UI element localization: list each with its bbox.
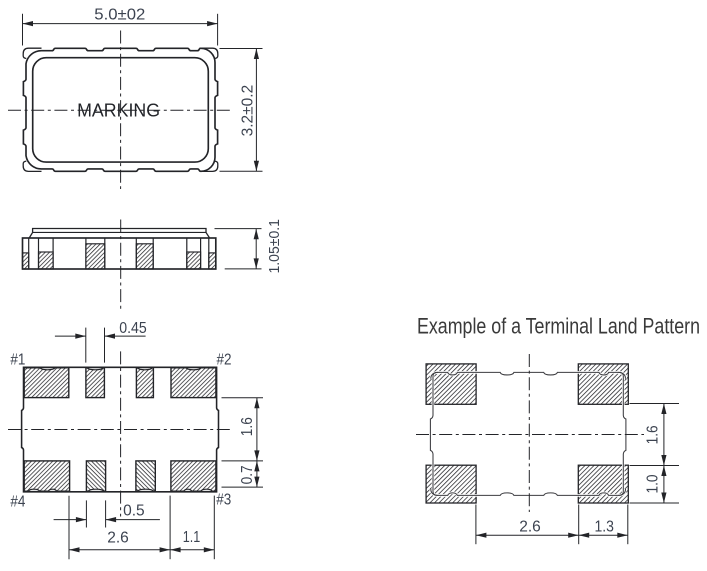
svg-text:2.6: 2.6 [107, 529, 129, 546]
svg-text:#4: #4 [10, 494, 25, 511]
svg-text:0.45: 0.45 [119, 320, 147, 337]
svg-text:1.05±0.1: 1.05±0.1 [267, 219, 283, 273]
svg-text:0.7: 0.7 [239, 465, 256, 484]
svg-text:1.0: 1.0 [645, 474, 662, 493]
svg-text:1.3: 1.3 [594, 519, 614, 536]
svg-text:2.6: 2.6 [519, 519, 541, 536]
svg-text:0.5: 0.5 [123, 503, 145, 520]
svg-text:#2: #2 [217, 352, 232, 369]
svg-text:1.1: 1.1 [183, 529, 201, 546]
svg-text:3.2±0.2: 3.2±0.2 [239, 85, 256, 137]
svg-text:1.6: 1.6 [645, 425, 662, 444]
svg-text:Example of a Terminal Land Pat: Example of a Terminal Land Pattern [417, 313, 700, 338]
svg-text:#3: #3 [216, 491, 231, 508]
svg-text:1.6: 1.6 [239, 417, 256, 436]
svg-text:#1: #1 [10, 352, 25, 369]
svg-text:5.0±02: 5.0±02 [94, 6, 145, 23]
